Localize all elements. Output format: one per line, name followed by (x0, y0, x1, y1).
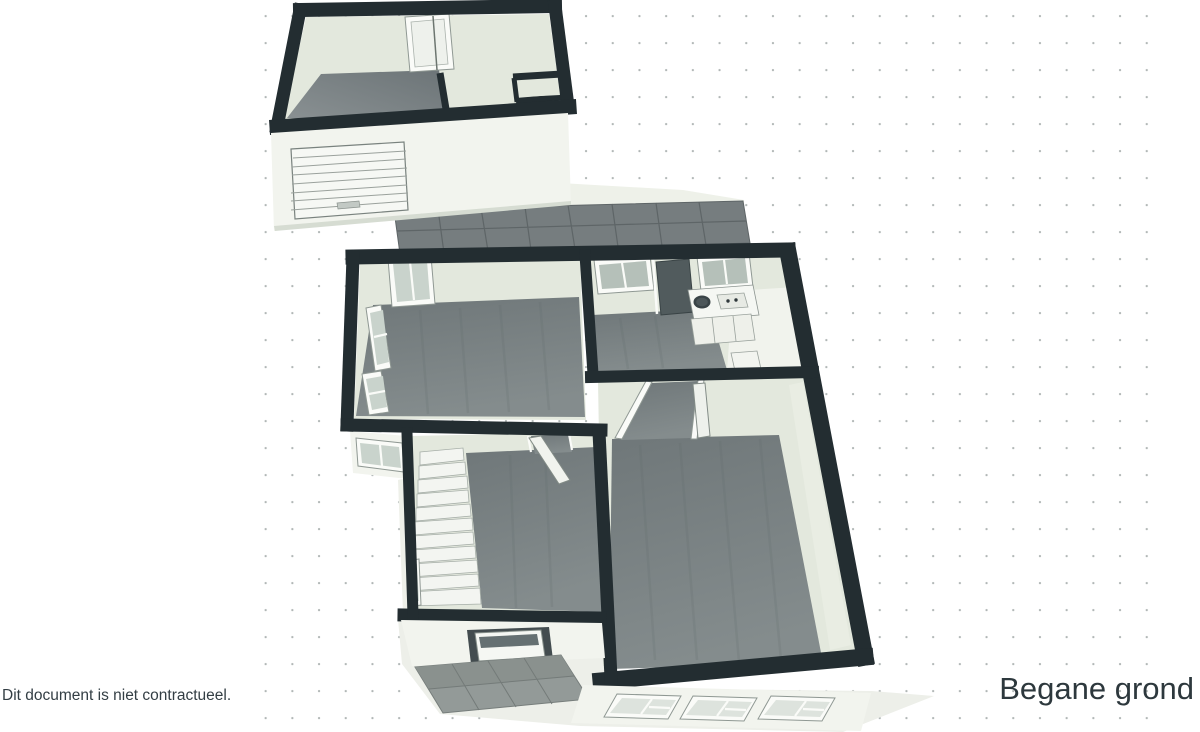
hallway[interactable] (407, 432, 603, 613)
kitchen-cabinets (691, 314, 755, 345)
floor-name-label: Begane grond (999, 671, 1194, 707)
front-facade (571, 685, 871, 731)
room-top-left-floor (356, 297, 585, 417)
garage[interactable] (271, 6, 571, 231)
garage-door[interactable] (291, 142, 408, 219)
garage-back-door[interactable] (405, 14, 454, 72)
kitchen-window-left[interactable] (594, 256, 654, 294)
disclaimer-text: Dit document is niet contractueel. (2, 687, 231, 705)
front-door[interactable] (475, 630, 545, 661)
bay-window[interactable] (350, 431, 408, 479)
facade-window-1[interactable] (604, 694, 681, 719)
main-house[interactable] (347, 250, 871, 731)
kitchen-cooktop (717, 293, 748, 309)
facade-window-2[interactable] (680, 696, 757, 721)
floorplan-3d-view[interactable] (0, 0, 1200, 732)
floorplan-canvas[interactable]: Dit document is niet contractueel. Began… (0, 0, 1200, 732)
kitchen[interactable] (590, 250, 811, 373)
facade-window-3[interactable] (758, 696, 835, 721)
hallway-floor (466, 447, 602, 612)
room-top-left[interactable] (354, 256, 586, 420)
